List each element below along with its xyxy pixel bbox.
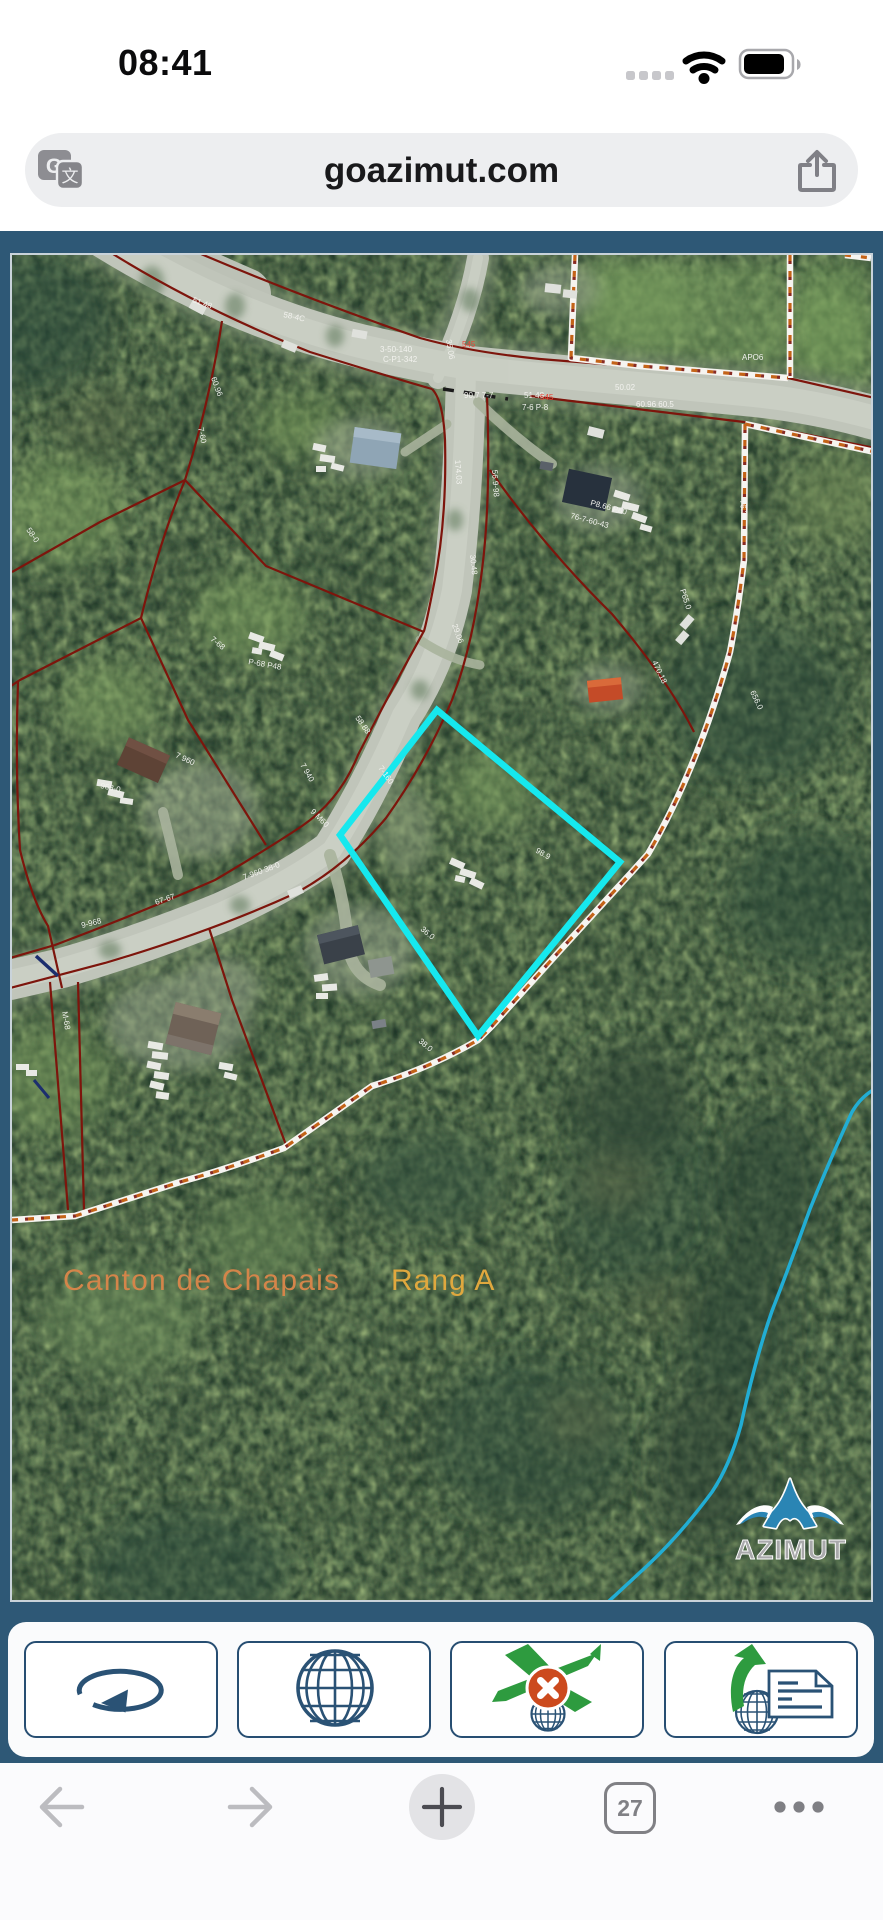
- svg-text:90.7 7-7: 90.7 7-7: [464, 391, 494, 400]
- svg-text:56.9-98: 56.9-98: [490, 470, 501, 498]
- svg-text:174.03: 174.03: [453, 460, 464, 486]
- svg-text:50.02: 50.02: [615, 383, 636, 392]
- svg-text:APO6: APO6: [742, 353, 764, 362]
- svg-text:545: 545: [462, 340, 476, 349]
- svg-text:AZIMUT: AZIMUT: [735, 1534, 847, 1565]
- svg-text:76.30: 76.30: [738, 499, 749, 520]
- svg-text:3-50-140: 3-50-140: [380, 345, 413, 354]
- svg-text:545: 545: [540, 393, 554, 402]
- svg-text:文: 文: [62, 167, 79, 186]
- svg-text:C-P1-342: C-P1-342: [383, 355, 418, 364]
- svg-text:Canton de Chapais: Canton de Chapais: [63, 1264, 340, 1297]
- svg-text:7-6 P-8: 7-6 P-8: [522, 403, 549, 412]
- svg-text:60.96 60.5: 60.96 60.5: [636, 400, 674, 409]
- svg-text:Rang A: Rang A: [391, 1264, 495, 1297]
